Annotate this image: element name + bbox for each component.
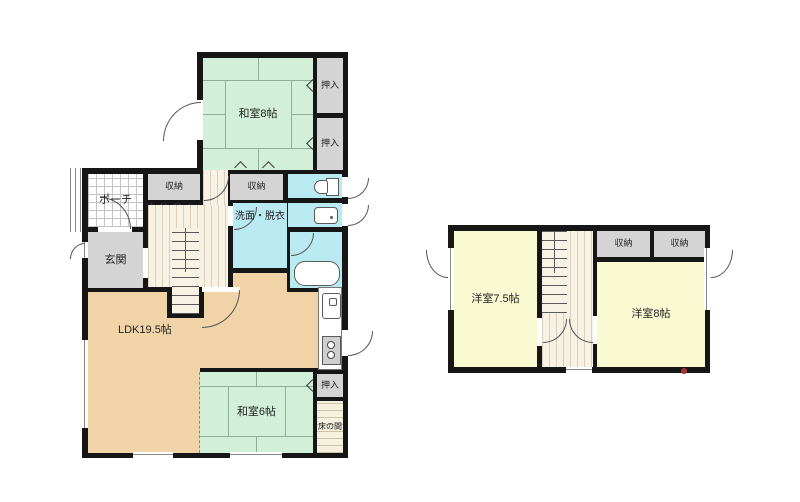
window <box>448 248 454 310</box>
room-label-yoshitsu8: 洋室8帖 <box>631 308 670 320</box>
room-label-yoshitsu75: 洋室7.5帖 <box>471 293 519 305</box>
door-opening <box>593 316 597 344</box>
room-label-ldk: LDK19.5帖 <box>118 324 172 336</box>
window <box>704 248 710 310</box>
closet-label: 押入 <box>321 139 339 149</box>
tokonoma-label: 床の間 <box>318 423 342 432</box>
room-yoshitsu-75: 洋室7.5帖 <box>454 231 537 367</box>
storage-label: 収納 <box>247 182 265 192</box>
floor-plan-canvas: 和室8帖 押入 押入 ポーチ 玄関 収納 収納 <box>0 0 800 502</box>
storage-label: 収納 <box>165 182 183 192</box>
room-label-washitsu8: 和室8帖 <box>238 108 277 120</box>
storage-2f-b: 収納 <box>654 231 705 257</box>
second-floor-plan: 洋室7.5帖 収納 収納 洋室8帖 <box>0 0 800 502</box>
room-yoshitsu-8: 洋室8帖 <box>597 262 705 367</box>
red-marker-dot <box>681 368 687 374</box>
closet-label: 押入 <box>321 381 339 391</box>
window <box>566 367 592 373</box>
storage-label: 収納 <box>670 239 688 249</box>
staircase-2f <box>554 231 555 273</box>
closet-label: 押入 <box>321 81 339 91</box>
storage-label: 収納 <box>614 239 632 249</box>
window-swing <box>426 250 448 278</box>
window-swing <box>711 250 733 278</box>
door-opening <box>537 318 542 346</box>
room-label-porch: ポーチ <box>99 194 132 206</box>
room-label-genkan: 玄関 <box>105 254 127 266</box>
room-label-senmen: 洗面・脱衣 <box>235 211 285 222</box>
storage-2f-a: 収納 <box>597 231 650 257</box>
room-label-washitsu6: 和室6帖 <box>237 406 276 418</box>
